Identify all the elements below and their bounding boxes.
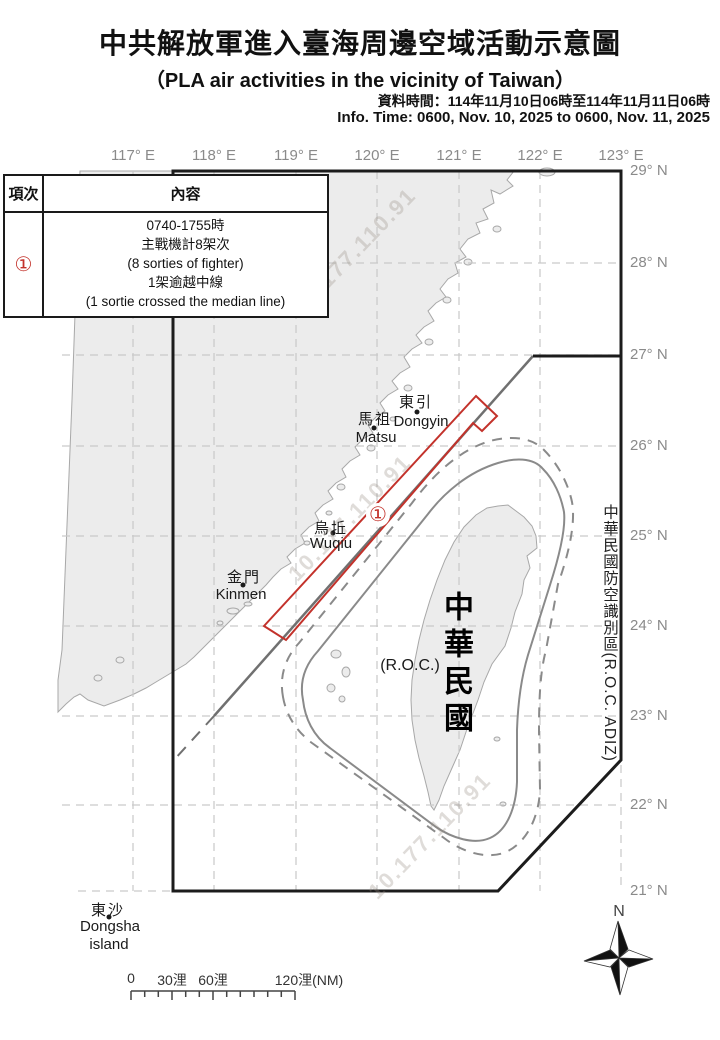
pla-activity-map-page: 10.177.110.91 10.177.110.91 10.177.110.9… <box>0 0 720 1040</box>
median-line-extension <box>174 716 214 760</box>
place-label-dongsha-zh: 東沙 <box>76 899 140 920</box>
page-title: 中共解放軍進入臺海周邊空域活動示意圖 <box>0 22 720 62</box>
lon-label: 121° E <box>427 147 491 164</box>
place-label-dongsha-en2: island <box>69 936 149 953</box>
lon-label: 119° E <box>264 147 328 164</box>
roc-adiz-vertical-label: 中華民國防空識別區(R.O.C. ADIZ) <box>598 504 620 774</box>
col-header-item: 項次 <box>5 176 44 213</box>
lon-label: 120° E <box>345 147 409 164</box>
lon-label: 117° E <box>101 147 165 164</box>
lat-label: 26° N <box>630 437 690 455</box>
activity-table: 項次 內容 ① 0740-1755時 主戰機計8架次 (8 sorties of… <box>3 174 329 318</box>
place-label-dongsha-en1: Dongsha <box>70 918 150 935</box>
scalebar-label: 120浬(NM) <box>259 970 359 990</box>
compass-rose <box>584 921 653 995</box>
content-line: 1架逾越中線 <box>44 273 327 292</box>
lat-label: 27° N <box>630 346 690 364</box>
col-header-content: 內容 <box>44 176 327 213</box>
place-label-kinmen-en: Kinmen <box>201 586 281 603</box>
content-line: (8 sorties of fighter) <box>44 254 327 273</box>
page-subtitle: （PLA air activities in the vicinity of T… <box>0 64 720 93</box>
scalebar-label: 60浬 <box>183 970 243 990</box>
lat-label: 25° N <box>630 527 690 545</box>
place-label-kinmen-zh: 金門 <box>212 566 276 587</box>
lat-label: 28° N <box>630 254 690 272</box>
row-content: 0740-1755時 主戰機計8架次 (8 sorties of fighter… <box>44 213 327 316</box>
info-time-zh: 資料時間：114年11月10日06時至114年11月11日06時 <box>0 91 710 111</box>
activity-marker-badge: ① <box>366 503 390 527</box>
scale-bar <box>131 991 295 1000</box>
place-label-matsu-en: Matsu <box>336 429 416 446</box>
lon-label: 122° E <box>508 147 572 164</box>
place-label-matsu-zh: 馬祖 <box>343 408 407 429</box>
lon-label: 118° E <box>182 147 246 164</box>
lat-label: 29° N <box>630 162 690 180</box>
roc-label: (R.O.C.) <box>360 657 460 675</box>
row-id-badge: ① <box>5 213 44 316</box>
content-line: 主戰機計8架次 <box>44 235 327 254</box>
info-time-en: Info. Time: 0600, Nov. 10, 2025 to 0600,… <box>0 109 710 126</box>
place-label-wuqiu-en: Wuqiu <box>291 535 371 552</box>
lat-label: 21° N <box>630 882 690 900</box>
lat-label: 24° N <box>630 617 690 635</box>
content-line: (1 sortie crossed the median line) <box>44 292 327 311</box>
content-line: 0740-1755時 <box>44 216 327 235</box>
lat-label: 23° N <box>630 707 690 725</box>
lat-label: 22° N <box>630 796 690 814</box>
scalebar-label: 0 <box>121 970 141 986</box>
compass-north-label: N <box>607 903 631 921</box>
